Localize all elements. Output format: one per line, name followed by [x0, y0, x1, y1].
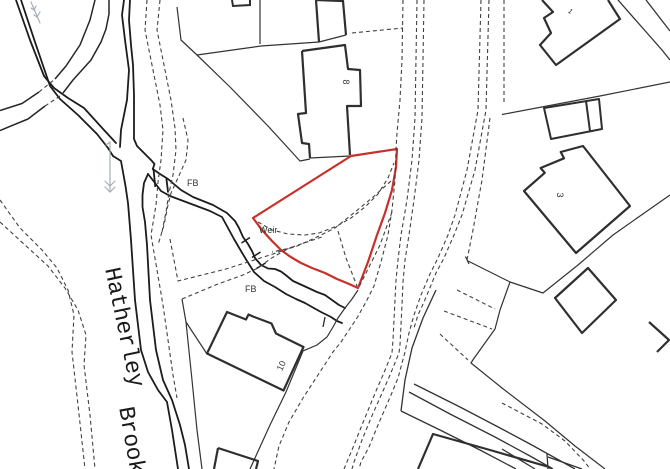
- svg-text:FB: FB: [245, 284, 257, 294]
- svg-text:Weir: Weir: [259, 225, 277, 235]
- svg-text:3: 3: [555, 192, 565, 197]
- svg-text:FB: FB: [187, 178, 199, 188]
- svg-text:8: 8: [341, 79, 351, 84]
